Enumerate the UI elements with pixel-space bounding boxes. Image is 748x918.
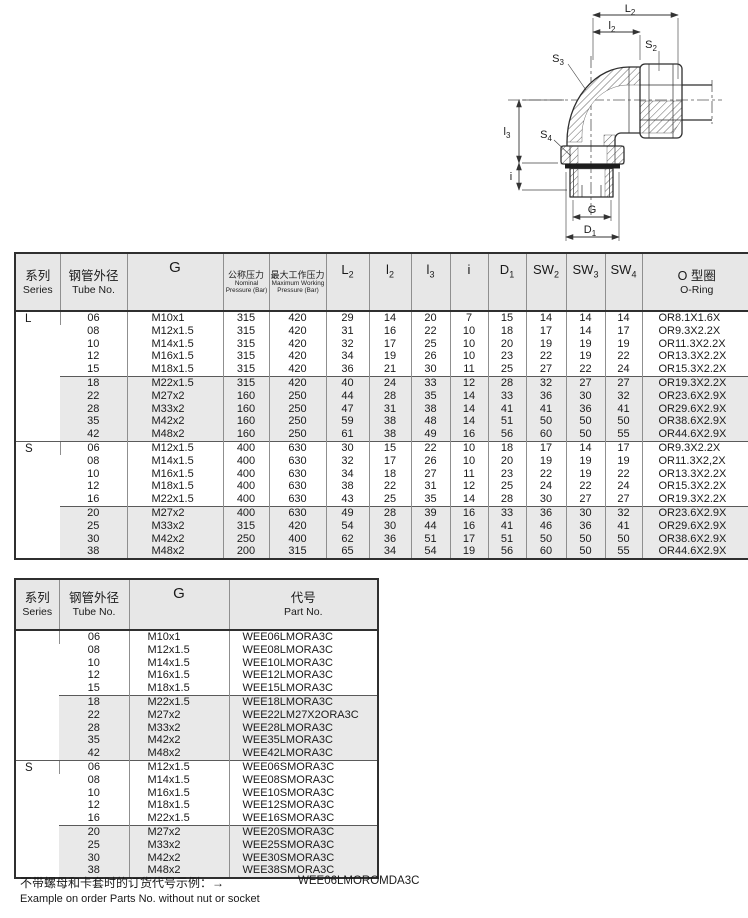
table-cell: 61 (326, 428, 369, 441)
table-cell: 60 (526, 428, 566, 441)
table-cell: M16x1.5 (127, 350, 223, 363)
table-cell: 420 (269, 338, 326, 351)
table-cell: 34 (369, 545, 411, 559)
table-cell: 23 (488, 350, 526, 363)
table-cell: 14 (450, 493, 488, 506)
table-cell: 420 (269, 363, 326, 376)
table-cell: 12 (60, 350, 127, 363)
table-cell: 34 (326, 468, 369, 481)
table-cell: M12x1.5 (129, 644, 229, 657)
table-cell: 50 (605, 533, 642, 546)
table-cell: M33x2 (127, 403, 223, 416)
table-cell: OR15.3X2.2X (642, 480, 748, 493)
table-row: 25M33x23154205430441641463641OR29.6X2.9X (15, 520, 748, 533)
table-row: L06M10x1315420291420715141414OR8.1X1.6X (15, 311, 748, 325)
table-cell: 43 (326, 493, 369, 506)
table-cell: 08 (59, 644, 129, 657)
order-example-note-en: Example on order Parts No. without nut o… (20, 893, 730, 905)
col-header-tube-no: 钢管外径Tube No. (60, 253, 127, 311)
table-cell: 38 (411, 403, 450, 416)
table-cell: OR44.6X2.9X (642, 428, 748, 441)
table-cell: M14x1.5 (129, 774, 229, 787)
table-cell: WEE20SMORA3C (229, 825, 378, 838)
table-cell: 50 (605, 415, 642, 428)
table-cell: 10 (450, 338, 488, 351)
table-cell: 15 (59, 682, 129, 695)
table-cell: WEE15LMORA3C (229, 682, 378, 695)
table-cell: 28 (60, 403, 127, 416)
table-cell: 36 (566, 520, 605, 533)
table-cell: M42x2 (127, 415, 223, 428)
table-cell: 29 (326, 311, 369, 325)
table-cell: 46 (526, 520, 566, 533)
table-cell: 11 (450, 363, 488, 376)
table-cell: 41 (526, 403, 566, 416)
table-cell: OR19.3X2.2X (642, 493, 748, 506)
table-row: 12M16x1.5WEE12LMORA3C (15, 669, 378, 682)
series-label: S (15, 441, 60, 559)
table-cell: 12 (450, 480, 488, 493)
table-cell: 24 (605, 363, 642, 376)
table-cell: 22 (605, 350, 642, 363)
table-cell: 28 (369, 390, 411, 403)
table-cell: 15 (369, 441, 411, 454)
table-cell: OR9.3X2.2X (642, 441, 748, 454)
table-cell: 315 (223, 520, 269, 533)
table-cell: 20 (60, 506, 127, 519)
table-cell: WEE42LMORA3C (229, 747, 378, 760)
table-cell: 36 (526, 390, 566, 403)
table-cell: 10 (60, 468, 127, 481)
table-cell: M27x2 (127, 506, 223, 519)
table-cell: 22 (566, 480, 605, 493)
table-cell: 17 (526, 441, 566, 454)
series-label (15, 630, 59, 760)
table-cell: 10 (59, 657, 129, 670)
table-cell: 30 (566, 506, 605, 519)
catalog-page: L2 l2 S2 S3 S4 l3 i G D1 系列Series 钢管外径Tu… (0, 0, 748, 918)
table-cell: 21 (369, 363, 411, 376)
table-cell: 18 (488, 325, 526, 338)
table-cell: 19 (526, 455, 566, 468)
table-cell: 420 (269, 376, 326, 389)
col-header-series: 系列Series (15, 253, 60, 311)
table-cell: WEE10LMORA3C (229, 657, 378, 670)
col-header-D1: D1 (488, 253, 526, 311)
table-cell: M12x1.5 (129, 760, 229, 773)
table-cell: 400 (223, 468, 269, 481)
dim-label-L2: L2 (625, 3, 636, 17)
table-cell: M33x2 (129, 839, 229, 852)
table-cell: 54 (411, 545, 450, 559)
table-cell: 315 (223, 311, 269, 325)
table-cell: 19 (526, 338, 566, 351)
table-cell: M48x2 (127, 545, 223, 559)
table-cell: 16 (369, 325, 411, 338)
table-cell: 7 (450, 311, 488, 325)
table-cell: 315 (223, 325, 269, 338)
table-cell: 40 (326, 376, 369, 389)
table-cell: 11 (450, 468, 488, 481)
table-cell: 630 (269, 493, 326, 506)
table-cell: 28 (369, 506, 411, 519)
part-number-table: 系列Series 钢管外径Tube No. G 代号Part No. 06M10… (14, 578, 379, 879)
table-cell: 22 (411, 441, 450, 454)
table-cell: 420 (269, 520, 326, 533)
table-cell: 51 (411, 533, 450, 546)
table-cell: 26 (411, 350, 450, 363)
table-cell: 06 (60, 311, 127, 325)
table-row: 35M42x2WEE35LMORA3C (15, 734, 378, 747)
table-cell: 62 (326, 533, 369, 546)
table-cell: M42x2 (127, 533, 223, 546)
table-row: 08M12x1.53154203116221018171417OR9.3X2.2… (15, 325, 748, 338)
col-header-series: 系列Series (15, 579, 59, 630)
col-header-l3: l3 (411, 253, 450, 311)
table-cell: 400 (223, 455, 269, 468)
table-row: 16M22x1.54006304325351428302727OR19.3X2.… (15, 493, 748, 506)
table-cell: OR13.3X2.2X (642, 350, 748, 363)
table-cell: 30 (566, 390, 605, 403)
table-cell: 28 (59, 722, 129, 735)
table-cell: 30 (526, 493, 566, 506)
table-cell: 10 (60, 338, 127, 351)
table-row: 22M27x21602504428351433363032OR23.6X2.9X (15, 390, 748, 403)
table-cell: 420 (269, 350, 326, 363)
table-cell: 630 (269, 441, 326, 454)
col-header-g: G (129, 579, 229, 630)
table-cell: 33 (488, 506, 526, 519)
table-cell: 12 (60, 480, 127, 493)
table-row: 38M48x22003156534541956605055OR44.6X2.9X (15, 545, 748, 559)
table-cell: 27 (566, 376, 605, 389)
table-cell: 25 (59, 839, 129, 852)
table-cell: M22x1.5 (127, 376, 223, 389)
col-header-SW3: SW3 (566, 253, 605, 311)
table-cell: 315 (223, 376, 269, 389)
table-cell: 32 (605, 506, 642, 519)
table-cell: WEE18LMORA3C (229, 695, 378, 708)
table-cell: 50 (566, 428, 605, 441)
col-header-o-ring: O 型圈O-Ring (642, 253, 748, 311)
table-cell: M10x1 (129, 630, 229, 644)
table-cell: 630 (269, 455, 326, 468)
table-cell: OR38.6X2.9X (642, 415, 748, 428)
table-cell: 25 (488, 363, 526, 376)
table-cell: M22x1.5 (129, 695, 229, 708)
table-cell: 16 (60, 493, 127, 506)
table-cell: OR23.6X2.9X (642, 390, 748, 403)
table-cell: 28 (488, 493, 526, 506)
table-cell: 19 (566, 338, 605, 351)
table-cell: M33x2 (129, 722, 229, 735)
table-cell: WEE25SMORA3C (229, 839, 378, 852)
technical-drawing: L2 l2 S2 S3 S4 l3 i G D1 (478, 0, 740, 246)
table-cell: 30 (369, 520, 411, 533)
table-cell: 49 (326, 506, 369, 519)
table-cell: OR23.6X2.9X (642, 506, 748, 519)
table-row: 15M18x1.5WEE15LMORA3C (15, 682, 378, 695)
table-cell: OR11.3X2.2X (642, 338, 748, 351)
table-cell: 400 (223, 493, 269, 506)
col-header-max-working-pressure: 最大工作压力Maximum WorkingPressure (Bar) (269, 253, 326, 311)
table-row: S06M12x1.5WEE06SMORA3C (15, 760, 378, 773)
table-cell: 23 (488, 468, 526, 481)
table-cell: M27x2 (127, 390, 223, 403)
table-cell: 16 (450, 428, 488, 441)
table-row: 18M22x1.53154204024331228322727OR19.3X2.… (15, 376, 748, 389)
table-cell: 400 (223, 441, 269, 454)
table-cell: 36 (326, 363, 369, 376)
table-cell: 400 (223, 480, 269, 493)
table-cell: 19 (566, 455, 605, 468)
table-cell: 14 (566, 311, 605, 325)
table-cell: 47 (326, 403, 369, 416)
table-cell: 25 (411, 338, 450, 351)
col-header-g: G (127, 253, 223, 311)
table-cell: 400 (269, 533, 326, 546)
table-cell: M42x2 (129, 852, 229, 865)
table-cell: 44 (326, 390, 369, 403)
table-cell: 22 (411, 325, 450, 338)
footer-note: 不带螺母和卡套时的订货代号示例：→ WEE06LMOROMDA3C Exampl… (20, 874, 730, 905)
table-cell: WEE35LMORA3C (229, 734, 378, 747)
table-cell: 36 (526, 506, 566, 519)
example-part-number: WEE06LMOROMDA3C (298, 875, 419, 887)
table-cell: M42x2 (129, 734, 229, 747)
table-row: 28M33x21602504731381441413641OR29.6X2.9X (15, 403, 748, 416)
table-cell: 19 (566, 468, 605, 481)
table-cell: 32 (326, 455, 369, 468)
table-cell: 49 (411, 428, 450, 441)
table-cell: 315 (223, 363, 269, 376)
table-cell: 250 (269, 428, 326, 441)
table-row: S06M12x1.54006303015221018171417OR9.3X2.… (15, 441, 748, 454)
table-cell: 10 (450, 350, 488, 363)
table-cell: 42 (60, 428, 127, 441)
table-cell: 48 (411, 415, 450, 428)
table-cell: 15 (488, 311, 526, 325)
table-cell: OR29.6X2.9X (642, 520, 748, 533)
table-cell: 630 (269, 480, 326, 493)
table-row: 20M27x2WEE20SMORA3C (15, 825, 378, 838)
table-cell: 35 (411, 390, 450, 403)
table-cell: OR13.3X2.2X (642, 468, 748, 481)
table-cell: 50 (526, 533, 566, 546)
table-cell: 25 (488, 480, 526, 493)
table-cell: 32 (526, 376, 566, 389)
dim-label-S4: S4 (540, 129, 552, 143)
table-cell: 17 (605, 441, 642, 454)
seal-washer (565, 164, 620, 169)
table-row: 08M14x1.5WEE08SMORA3C (15, 774, 378, 787)
table-cell: M27x2 (129, 825, 229, 838)
table-cell: 14 (450, 415, 488, 428)
table-cell: 38 (369, 415, 411, 428)
table-cell: 32 (326, 338, 369, 351)
table-cell: 18 (59, 695, 129, 708)
table-cell: 35 (59, 734, 129, 747)
table-cell: OR9.3X2.2X (642, 325, 748, 338)
table-cell: 55 (605, 545, 642, 559)
table-row: 42M48x21602506138491656605055OR44.6X2.9X (15, 428, 748, 441)
table-cell: M10x1 (127, 311, 223, 325)
table-cell: 18 (60, 376, 127, 389)
table-cell: 14 (526, 311, 566, 325)
table-cell: 38 (60, 545, 127, 559)
col-header-nominal-pressure: 公称压力NominalPressure (Bar) (223, 253, 269, 311)
table-cell: 54 (326, 520, 369, 533)
header-row: 系列Series 钢管外径Tube No. G 代号Part No. (15, 579, 378, 630)
table-row: 06M10x1WEE06LMORA3C (15, 630, 378, 644)
table-cell: 27 (605, 493, 642, 506)
table-row: 22M27x2WEE22LM27X2ORA3C (15, 709, 378, 722)
table-cell: WEE12SMORA3C (229, 799, 378, 812)
table-cell: 10 (450, 441, 488, 454)
table-cell: 420 (269, 325, 326, 338)
table-cell: 250 (269, 390, 326, 403)
table-cell: M33x2 (127, 520, 223, 533)
table-cell: 315 (223, 338, 269, 351)
table-cell: 10 (450, 325, 488, 338)
part-number-table-body: 06M10x1WEE06LMORA3C08M12x1.5WEE08LMORA3C… (15, 630, 378, 878)
table-cell: M12x1.5 (127, 441, 223, 454)
table-cell: 30 (60, 533, 127, 546)
table-cell: 630 (269, 506, 326, 519)
table-cell: 12 (450, 376, 488, 389)
table-cell: 22 (605, 468, 642, 481)
table-cell: 16 (450, 520, 488, 533)
table-cell: 19 (450, 545, 488, 559)
col-header-l2: l2 (369, 253, 411, 311)
table-row: 35M42x21602505938481451505050OR38.6X2.9X (15, 415, 748, 428)
table-cell: 51 (488, 533, 526, 546)
table-cell: 33 (411, 376, 450, 389)
dim-label-l2: l2 (609, 20, 616, 34)
table-cell: 14 (450, 390, 488, 403)
table-cell: WEE10SMORA3C (229, 787, 378, 800)
table-cell: 06 (60, 441, 127, 454)
table-cell: 22 (526, 468, 566, 481)
table-cell: M14x1.5 (129, 657, 229, 670)
table-cell: 41 (605, 520, 642, 533)
table-cell: 20 (488, 338, 526, 351)
table-cell: 41 (488, 520, 526, 533)
tube (682, 85, 712, 120)
series-label: S (15, 760, 59, 878)
table-row: 42M48x2WEE42LMORA3C (15, 747, 378, 760)
table-cell: WEE08SMORA3C (229, 774, 378, 787)
table-cell: 22 (369, 480, 411, 493)
table-cell: 200 (223, 545, 269, 559)
table-cell: 31 (326, 325, 369, 338)
table-cell: 14 (369, 311, 411, 325)
col-header-L2: L2 (326, 253, 369, 311)
table-cell: 18 (488, 441, 526, 454)
table-cell: 51 (488, 415, 526, 428)
table-cell: 22 (60, 390, 127, 403)
table-cell: 41 (605, 403, 642, 416)
dim-label-D1: D1 (584, 224, 597, 238)
table-cell: 24 (605, 480, 642, 493)
table-cell: 20 (488, 455, 526, 468)
table-row: 12M16x1.53154203419261023221922OR13.3X2.… (15, 350, 748, 363)
table-cell: 250 (269, 403, 326, 416)
table-cell: 25 (60, 520, 127, 533)
table-row: 28M33x2WEE28LMORA3C (15, 722, 378, 735)
col-header-tube-no: 钢管外径Tube No. (59, 579, 129, 630)
table-cell: OR19.3X2.2X (642, 376, 748, 389)
table-row: 08M12x1.5WEE08LMORA3C (15, 644, 378, 657)
table-cell: 17 (369, 455, 411, 468)
table-cell: 15 (60, 363, 127, 376)
series-label: L (15, 311, 60, 441)
table-cell: 14 (566, 441, 605, 454)
dimensions-table: 系列Series 钢管外径Tube No. G 公称压力NominalPress… (14, 252, 748, 560)
table-cell: 56 (488, 545, 526, 559)
table-cell: 24 (369, 376, 411, 389)
table-cell: 22 (59, 709, 129, 722)
table-cell: 55 (605, 428, 642, 441)
table-cell: 39 (411, 506, 450, 519)
table-cell: 20 (411, 311, 450, 325)
table-cell: 160 (223, 403, 269, 416)
table-cell: 08 (59, 774, 129, 787)
table-cell: 17 (369, 338, 411, 351)
table-row: 30M42x2WEE30SMORA3C (15, 852, 378, 865)
table-cell: 160 (223, 415, 269, 428)
table-cell: 18 (369, 468, 411, 481)
dim-label-l3: l3 (504, 126, 511, 140)
table-cell: 34 (326, 350, 369, 363)
col-header-i: i (450, 253, 488, 311)
table-cell: 25 (369, 493, 411, 506)
table-cell: 10 (450, 455, 488, 468)
table-row: 20M27x24006304928391633363032OR23.6X2.9X (15, 506, 748, 519)
table-row: 25M33x2WEE25SMORA3C (15, 839, 378, 852)
table-cell: 16 (59, 812, 129, 825)
table-row: 10M14x1.53154203217251020191919OR11.3X2.… (15, 338, 748, 351)
table-cell: 16 (450, 506, 488, 519)
table-cell: 28 (488, 376, 526, 389)
table-cell: 50 (566, 415, 605, 428)
table-cell: 36 (369, 533, 411, 546)
table-cell: 19 (369, 350, 411, 363)
table-cell: 56 (488, 428, 526, 441)
table-cell: M18x1.5 (129, 682, 229, 695)
table-cell: WEE16SMORA3C (229, 812, 378, 825)
table-cell: 30 (59, 852, 129, 865)
table-cell: M16x1.5 (129, 669, 229, 682)
table-cell: OR29.6X2.9X (642, 403, 748, 416)
table-cell: 42 (59, 747, 129, 760)
table-cell: 17 (605, 325, 642, 338)
table-cell: 31 (369, 403, 411, 416)
header-row: 系列Series 钢管外径Tube No. G 公称压力NominalPress… (15, 253, 748, 311)
table-row: 08M14x1.54006303217261020191919OR11.3X2,… (15, 455, 748, 468)
table-cell: 22 (526, 350, 566, 363)
table-cell: 41 (488, 403, 526, 416)
table-cell: M22x1.5 (127, 493, 223, 506)
table-row: 10M16x1.54006303418271123221922OR13.3X2.… (15, 468, 748, 481)
table-cell: M12x1.5 (127, 325, 223, 338)
table-cell: 35 (411, 493, 450, 506)
table-cell: M27x2 (129, 709, 229, 722)
table-cell: WEE06LMORA3C (229, 630, 378, 644)
table-cell: 22 (566, 363, 605, 376)
table-cell: 50 (566, 533, 605, 546)
table-cell: 315 (223, 350, 269, 363)
